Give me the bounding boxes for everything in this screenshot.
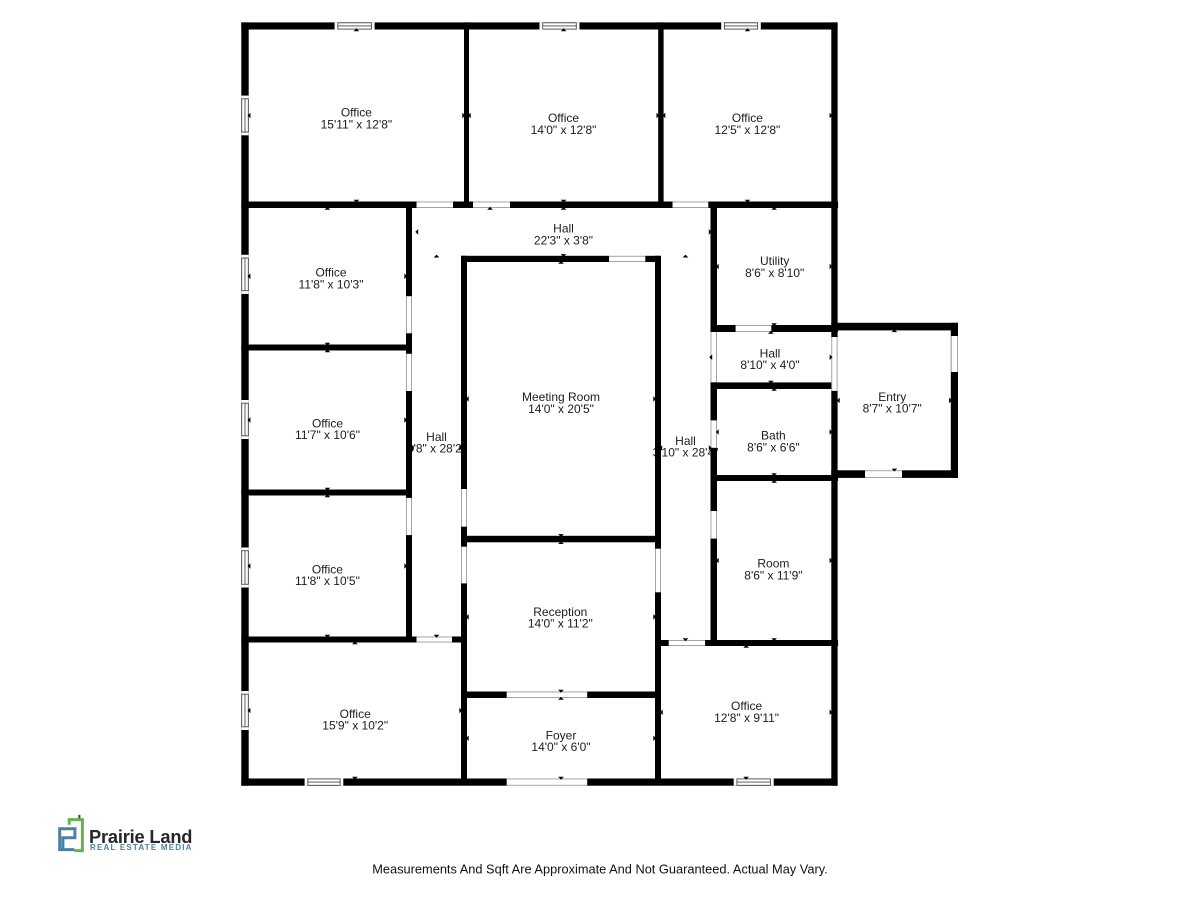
svg-text:11'7" x 10'6": 11'7" x 10'6" bbox=[295, 428, 360, 442]
svg-text:14'0" x 20'5": 14'0" x 20'5" bbox=[528, 402, 594, 416]
svg-text:15'9" x 10'2": 15'9" x 10'2" bbox=[322, 719, 388, 733]
svg-text:8'7" x 10'7": 8'7" x 10'7" bbox=[863, 402, 922, 416]
svg-text:14'0" x 12'8": 14'0" x 12'8" bbox=[531, 123, 597, 137]
svg-text:11'8" x 10'3": 11'8" x 10'3" bbox=[299, 277, 364, 291]
svg-text:8'6" x 8'10": 8'6" x 8'10" bbox=[745, 266, 804, 280]
svg-text:REAL ESTATE MEDIA: REAL ESTATE MEDIA bbox=[90, 843, 193, 852]
svg-text:8'10" x 4'0": 8'10" x 4'0" bbox=[740, 358, 799, 372]
svg-text:22'3" x 3'8": 22'3" x 3'8" bbox=[534, 233, 593, 247]
svg-text:14'0" x 11'2": 14'0" x 11'2" bbox=[528, 617, 593, 631]
svg-text:Measurements And Sqft Are Appr: Measurements And Sqft Are Approximate An… bbox=[372, 862, 827, 877]
svg-text:3'8" x 28'2": 3'8" x 28'2" bbox=[407, 442, 466, 456]
svg-text:8'6" x 6'6": 8'6" x 6'6" bbox=[747, 441, 799, 455]
svg-text:14'0" x 6'0": 14'0" x 6'0" bbox=[531, 740, 590, 754]
svg-text:8'6" x 11'9": 8'6" x 11'9" bbox=[744, 569, 802, 583]
svg-text:12'8" x 9'11": 12'8" x 9'11" bbox=[714, 711, 779, 725]
svg-text:11'8" x 10'5": 11'8" x 10'5" bbox=[295, 574, 360, 588]
svg-text:12'5" x 12'8": 12'5" x 12'8" bbox=[714, 123, 780, 137]
svg-text:3'10" x 28'4": 3'10" x 28'4" bbox=[653, 446, 719, 460]
svg-text:15'11" x 12'8": 15'11" x 12'8" bbox=[321, 117, 393, 131]
